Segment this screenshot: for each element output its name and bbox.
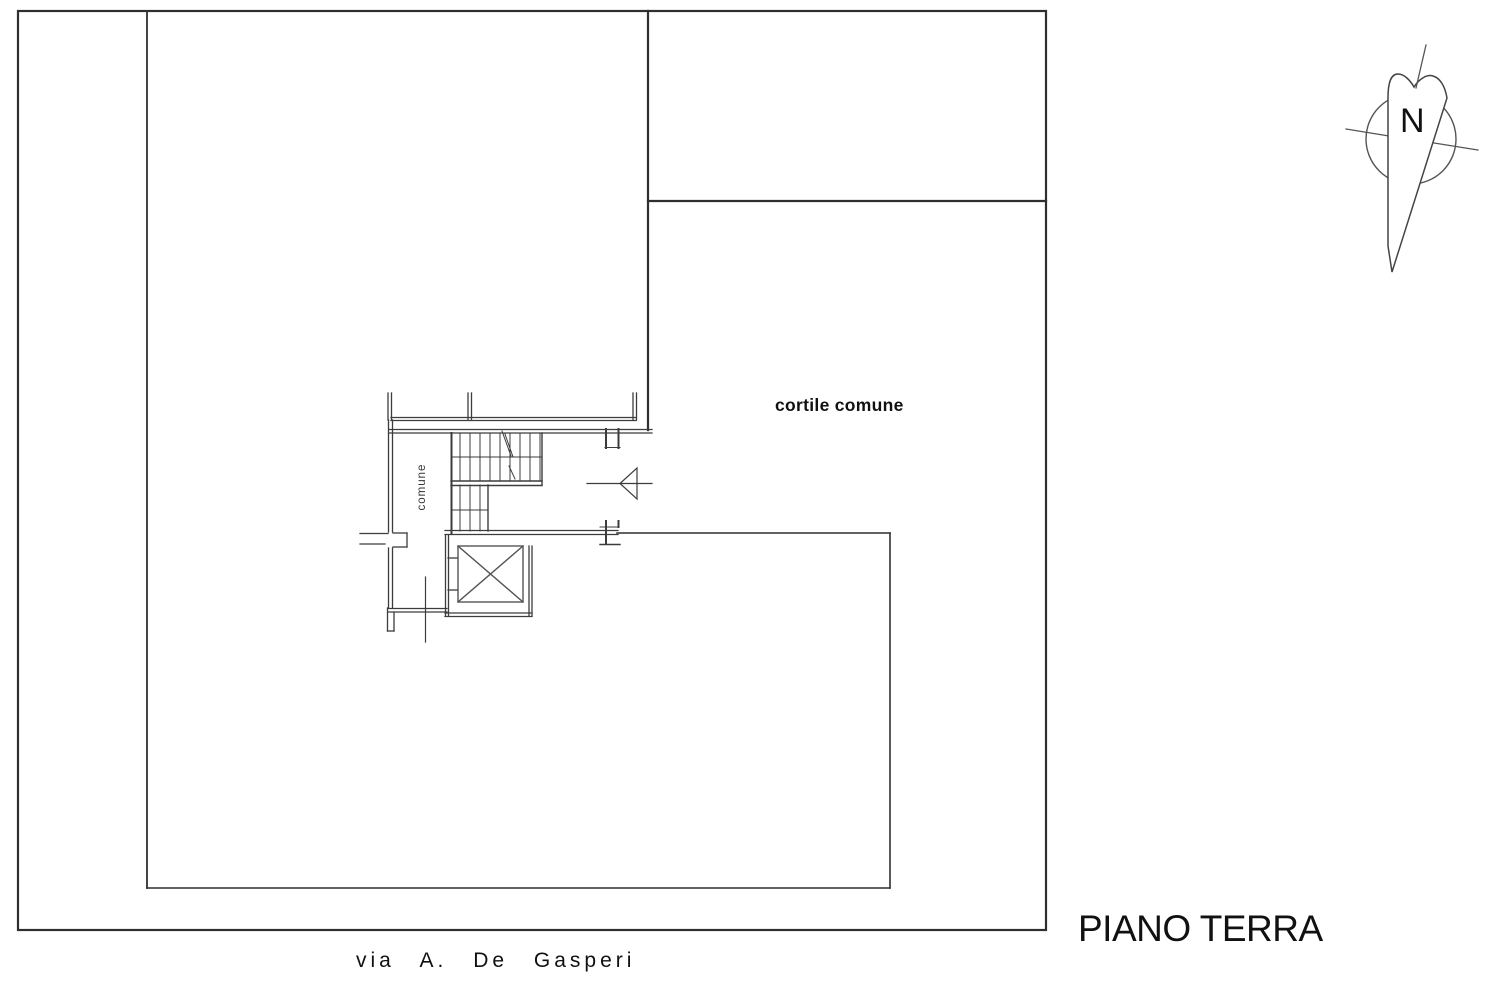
stair-block-walls xyxy=(360,420,652,642)
elevator xyxy=(445,535,532,617)
elevator-shaft xyxy=(458,546,523,602)
parcel-boundary xyxy=(18,11,1046,930)
floor-title: PIANO TERRA xyxy=(1078,908,1323,950)
street-label: via A. De Gasperi xyxy=(356,949,635,973)
building-outline xyxy=(147,533,890,888)
courtyard-label: cortile comune xyxy=(775,395,904,416)
entrance-door xyxy=(587,429,652,545)
floor-plan-drawing: N xyxy=(0,0,1498,1000)
porch-wall xyxy=(388,393,637,421)
north-compass: N xyxy=(1346,45,1478,272)
compass-north-label: N xyxy=(1400,102,1425,140)
staircase xyxy=(451,431,542,533)
stair-corridor-label: comune xyxy=(416,457,430,517)
floor-plan-page: N comune cortile comune PIANO TERRA via … xyxy=(0,0,1498,1000)
